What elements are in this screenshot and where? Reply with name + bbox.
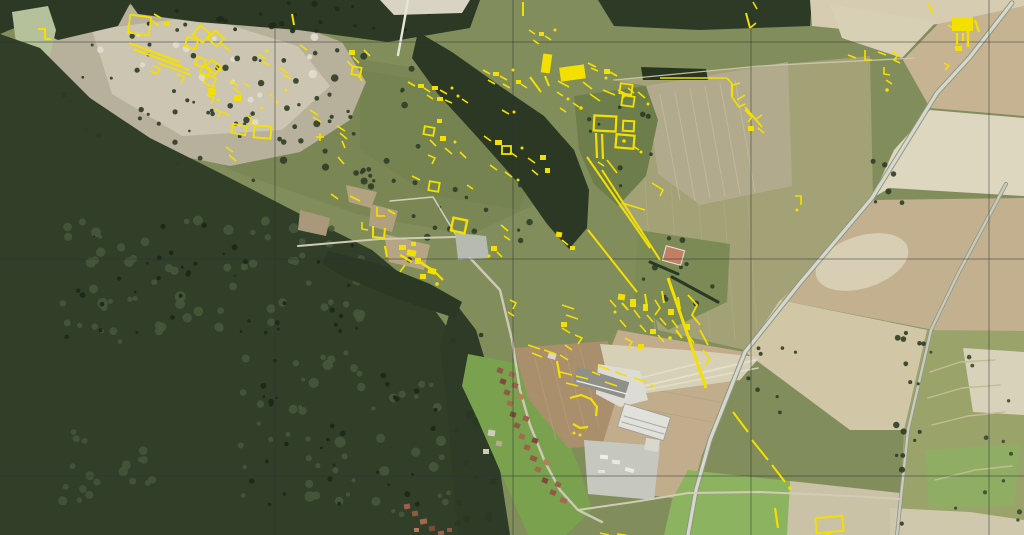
aerial-orthophoto-map[interactable] bbox=[0, 0, 1024, 535]
terrain-imagery-layer bbox=[0, 0, 1024, 535]
map-canvas[interactable] bbox=[0, 0, 1024, 535]
